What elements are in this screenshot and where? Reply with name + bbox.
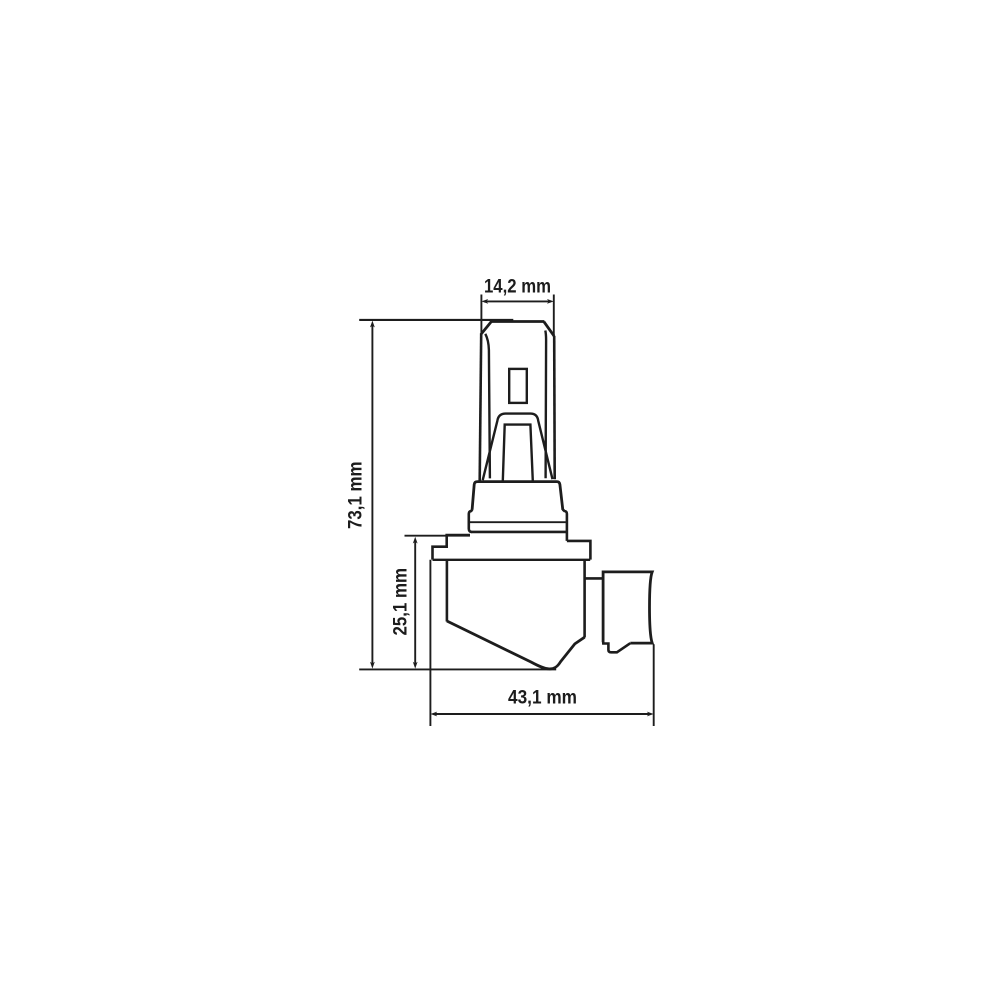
svg-text:73,1 mm: 73,1 mm	[344, 461, 366, 529]
svg-text:14,2 mm: 14,2 mm	[484, 276, 551, 298]
svg-text:25,1 mm: 25,1 mm	[389, 568, 411, 636]
svg-text:43,1 mm: 43,1 mm	[508, 687, 577, 709]
